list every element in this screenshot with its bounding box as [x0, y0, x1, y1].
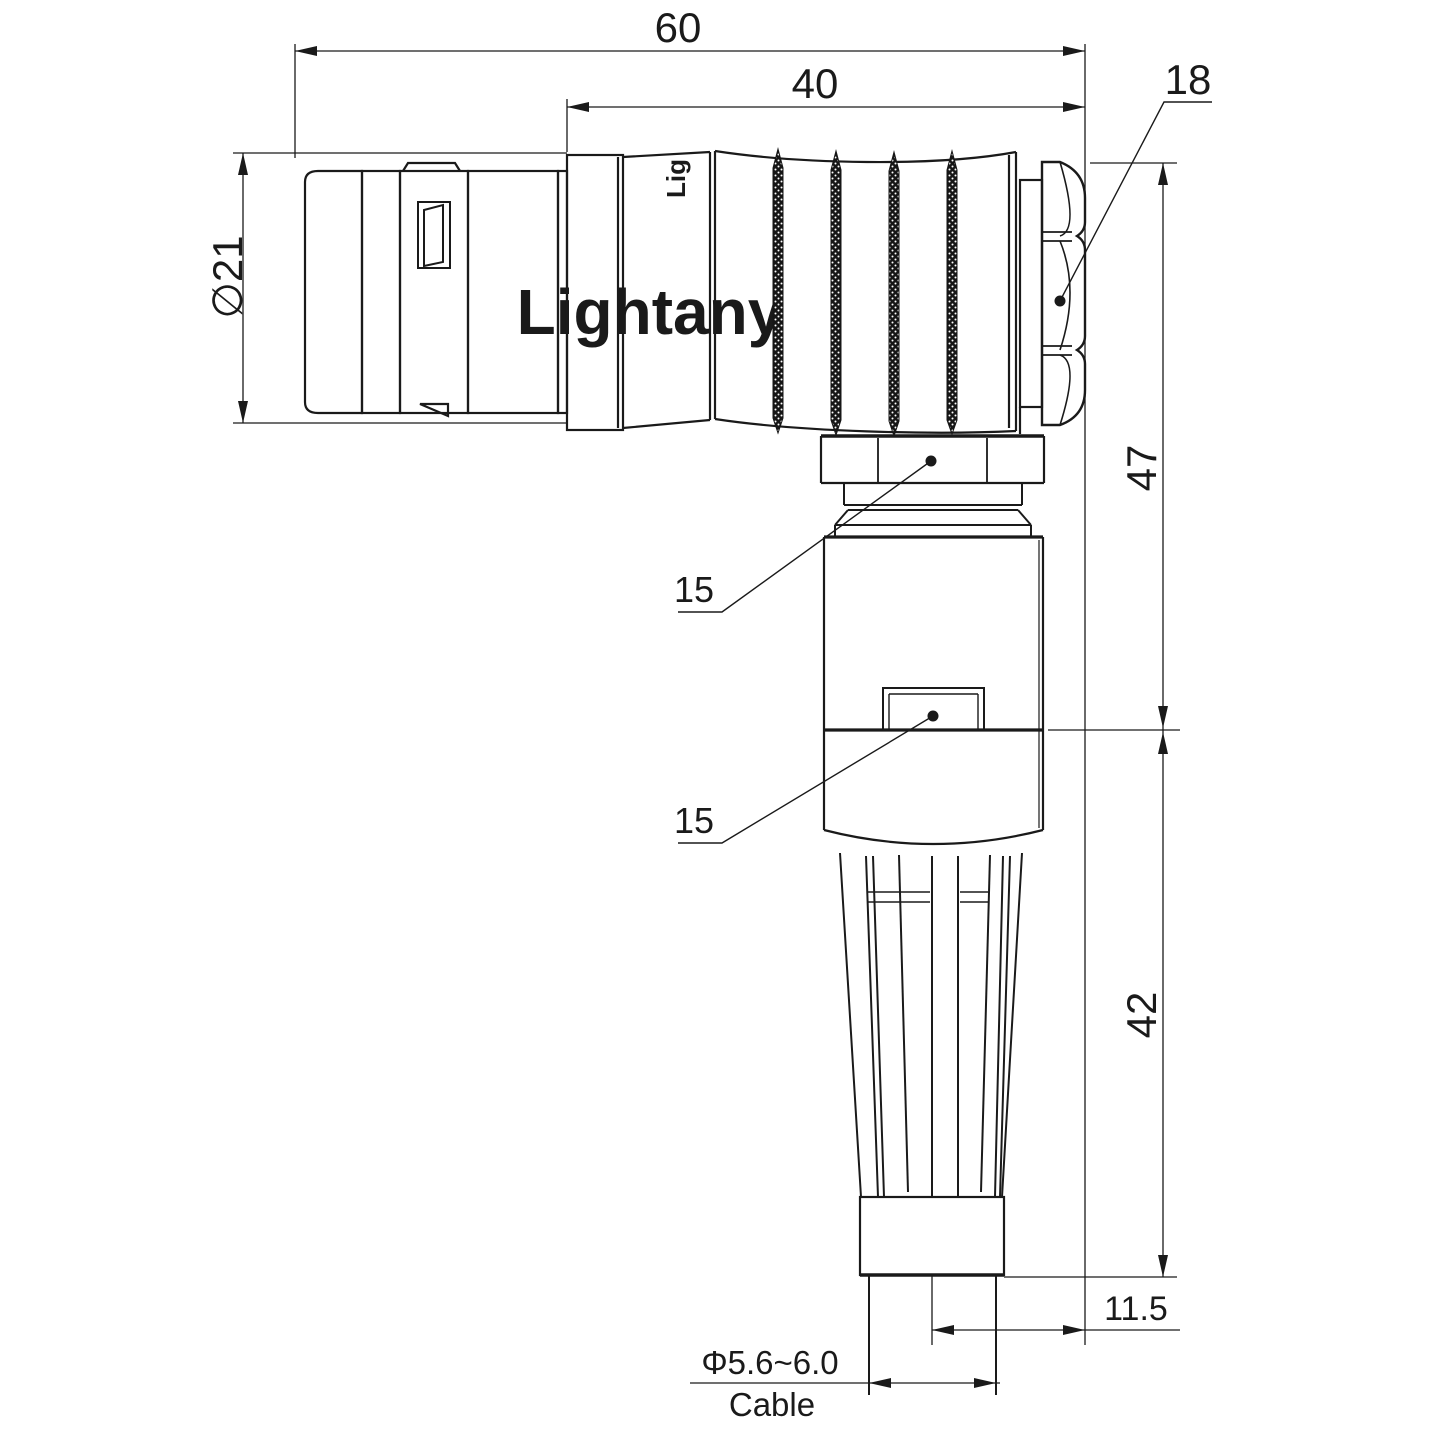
barrel-logo-text: Lig: [661, 159, 691, 198]
strain-relief-crown: [840, 853, 1022, 1275]
dim-axis-offset: 11.5: [1104, 1290, 1168, 1328]
dim-front-diameter: ∅21: [204, 235, 251, 318]
latch-window: [883, 688, 984, 730]
watermark-text: Lightany: [517, 276, 784, 348]
keyway-window: [418, 202, 450, 268]
dim-upper-height: 47: [1118, 445, 1165, 492]
dim-elbow-nut-flats: 15: [674, 569, 714, 610]
dim-body-flats: 15: [674, 800, 714, 841]
elbow-body: [821, 436, 1044, 844]
knurl-strips: [773, 149, 957, 436]
polarizing-key: [420, 404, 448, 416]
dim-body-length: 40: [792, 60, 839, 107]
dim-lower-height: 42: [1118, 992, 1165, 1039]
technical-drawing-page: Lightany: [0, 0, 1440, 1440]
dim-backnut-size: 18: [1165, 56, 1212, 103]
release-tab: [403, 163, 460, 171]
dimension-lines: [233, 44, 1180, 1383]
cable-label: Cable: [729, 1386, 815, 1423]
dimension-arrows: [238, 46, 1168, 1388]
dim-overall-length: 60: [655, 4, 702, 51]
connector-dimension-drawing: Lightany: [0, 0, 1440, 1440]
dim-cable-diameter: Φ5.6~6.0: [701, 1344, 838, 1381]
